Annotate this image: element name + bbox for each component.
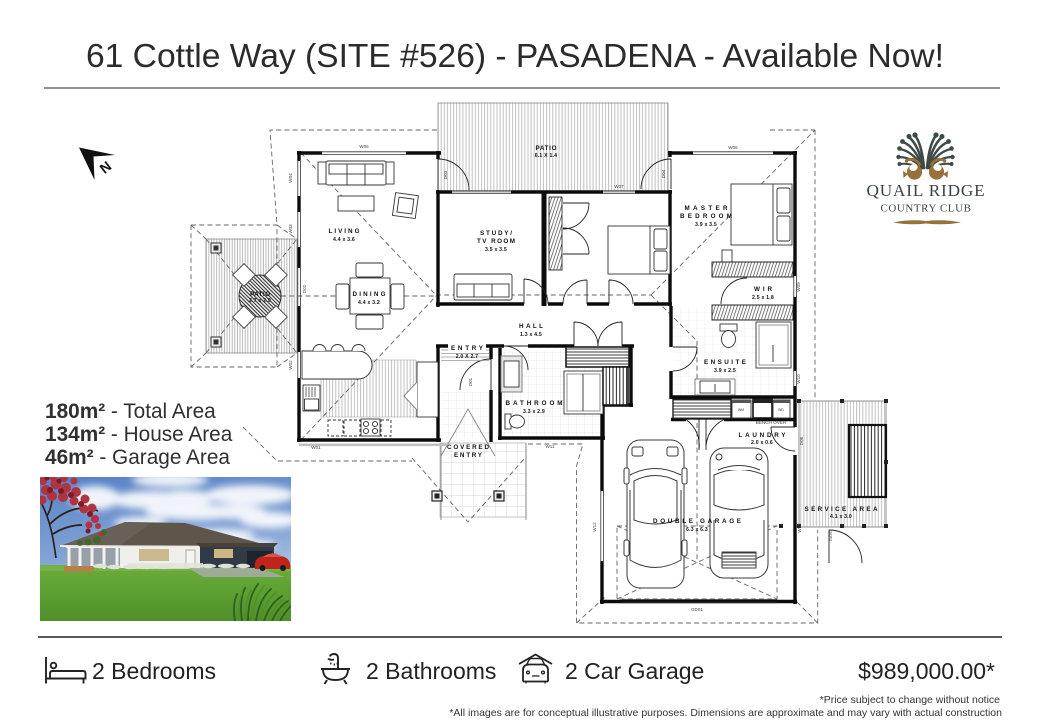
svg-text:W11: W11 xyxy=(797,523,802,533)
svg-text:4.4 x 3.6: 4.4 x 3.6 xyxy=(333,237,355,243)
svg-text:D01: D01 xyxy=(468,377,473,386)
svg-text:2 Bathrooms: 2 Bathrooms xyxy=(366,658,496,684)
svg-text:6.3 x 6.3: 6.3 x 6.3 xyxy=(686,527,708,533)
svg-text:D04: D04 xyxy=(661,169,666,178)
svg-text:PATIO: PATIO xyxy=(250,291,270,298)
svg-text:2 Bedrooms: 2 Bedrooms xyxy=(92,658,216,684)
svg-text:W10: W10 xyxy=(796,374,801,384)
svg-text:*All images are for conceptual: *All images are for conceptual illustrat… xyxy=(449,707,1002,719)
svg-text:2.0 X 2.7: 2.0 X 2.7 xyxy=(456,354,479,360)
svg-text:LIVING: LIVING xyxy=(329,228,360,235)
svg-text:180m² - Total Area: 180m² - Total Area xyxy=(45,400,216,423)
svg-text:2.5 x 1.8: 2.5 x 1.8 xyxy=(752,295,774,301)
svg-text:WD: WD xyxy=(778,408,784,412)
svg-text:W07: W07 xyxy=(614,184,624,189)
svg-text:D03: D03 xyxy=(443,170,448,179)
svg-text:D06: D06 xyxy=(799,436,804,445)
svg-text:TV ROOM: TV ROOM xyxy=(477,238,515,245)
svg-text:W03: W03 xyxy=(288,224,293,234)
svg-text:W09: W09 xyxy=(796,282,801,292)
svg-text:LAUNDRY: LAUNDRY xyxy=(739,432,787,439)
svg-text:2 Car Garage: 2 Car Garage xyxy=(565,658,704,684)
svg-text:W02: W02 xyxy=(288,360,293,370)
svg-text:W06: W06 xyxy=(728,145,738,150)
svg-text:4.1 x 3.0: 4.1 x 3.0 xyxy=(830,514,852,520)
svg-text:D02: D02 xyxy=(302,284,307,293)
svg-text:MASTER: MASTER xyxy=(685,205,728,212)
svg-text:PATIO: PATIO xyxy=(536,145,557,152)
svg-text:46m² - Garage Area: 46m² - Garage Area xyxy=(45,446,230,469)
svg-text:GATE: GATE xyxy=(829,531,833,542)
svg-text:3.9 x 3.5: 3.9 x 3.5 xyxy=(695,222,717,228)
svg-text:61 Cottle Way (SITE #526) - PA: 61 Cottle Way (SITE #526) - PASADENA - A… xyxy=(86,37,944,74)
svg-text:STUDY/: STUDY/ xyxy=(480,230,512,237)
svg-text:2.7 x 2.9: 2.7 x 2.9 xyxy=(249,298,271,304)
svg-text:BATHROOM: BATHROOM xyxy=(506,400,563,407)
svg-text:1.3 x 4.5: 1.3 x 4.5 xyxy=(520,332,542,338)
svg-text:3.3 x 2.9: 3.3 x 2.9 xyxy=(523,409,545,415)
svg-text:*Price subject to change witho: *Price subject to change without notice xyxy=(820,694,1001,706)
svg-text:W11: W11 xyxy=(545,444,555,449)
svg-text:WIR: WIR xyxy=(754,286,772,293)
svg-text:134m² - House Area: 134m² - House Area xyxy=(45,423,233,446)
svg-text:2.0 x 0.6: 2.0 x 0.6 xyxy=(751,440,773,446)
svg-text:3.9 x 2.5: 3.9 x 2.5 xyxy=(714,368,736,374)
svg-text:BENCH OVER: BENCH OVER xyxy=(756,420,787,425)
svg-text:W01: W01 xyxy=(311,445,321,450)
svg-text:HALL: HALL xyxy=(519,323,543,330)
svg-text:COUNTRY CLUB: COUNTRY CLUB xyxy=(881,203,972,215)
svg-text:3.5 x 3.5: 3.5 x 3.5 xyxy=(485,247,507,253)
svg-text:BEDROOM: BEDROOM xyxy=(680,213,732,220)
svg-text:QUAIL RIDGE: QUAIL RIDGE xyxy=(867,181,986,200)
svg-text:N: N xyxy=(96,158,114,177)
svg-text:$989,000.00*: $989,000.00* xyxy=(858,658,995,684)
svg-text:WM: WM xyxy=(738,408,744,412)
svg-text:GD01: GD01 xyxy=(691,607,703,612)
svg-text:6.1 X 1.4: 6.1 X 1.4 xyxy=(535,153,558,159)
svg-text:W04: W04 xyxy=(288,173,293,183)
svg-text:W05: W05 xyxy=(359,144,369,149)
svg-text:W12: W12 xyxy=(592,522,597,532)
svg-text:4.4 x 3.2: 4.4 x 3.2 xyxy=(358,300,380,306)
